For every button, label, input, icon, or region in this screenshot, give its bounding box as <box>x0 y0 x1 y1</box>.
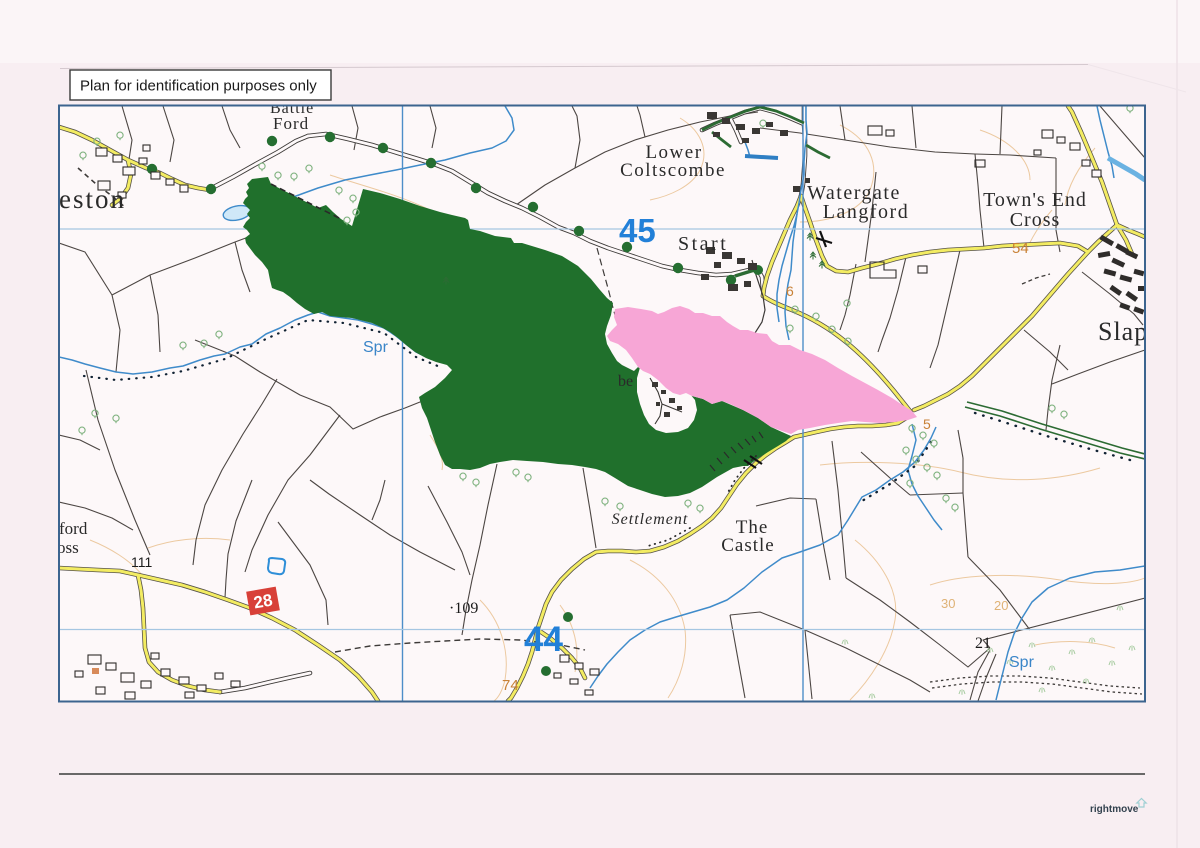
svg-text:Settlement: Settlement <box>612 511 689 528</box>
svg-text:Spr: Spr <box>1009 654 1035 671</box>
svg-text:be: be <box>618 373 633 390</box>
svg-text:30: 30 <box>941 596 955 611</box>
svg-text:·109: ·109 <box>449 600 478 617</box>
svg-text:Castle: Castle <box>721 535 775 556</box>
svg-text:Cross: Cross <box>1010 209 1061 231</box>
svg-text:Langford: Langford <box>823 201 909 223</box>
svg-text:Start: Start <box>678 233 728 255</box>
svg-text:oss: oss <box>57 538 79 557</box>
svg-text:Town's End: Town's End <box>983 189 1087 211</box>
svg-text:eston: eston <box>59 184 126 214</box>
svg-text:ford: ford <box>59 519 88 538</box>
svg-text:Ford: Ford <box>273 114 309 133</box>
svg-text:Spr: Spr <box>363 339 389 356</box>
svg-text:5: 5 <box>923 416 931 432</box>
svg-text:Slap: Slap <box>1098 317 1148 346</box>
svg-text:111: 111 <box>131 554 152 570</box>
svg-text:Plan for identification purpos: Plan for identification purposes only <box>80 78 317 95</box>
svg-text:rightmove: rightmove <box>1090 804 1139 815</box>
svg-text:Coltscombe: Coltscombe <box>620 160 726 181</box>
svg-text:74: 74 <box>502 677 519 694</box>
svg-text:21: 21 <box>975 635 991 652</box>
svg-text:28: 28 <box>252 590 274 612</box>
svg-text:44: 44 <box>524 620 563 659</box>
svg-text:6: 6 <box>786 283 794 299</box>
svg-text:45: 45 <box>619 212 656 249</box>
svg-text:54: 54 <box>1012 240 1029 257</box>
svg-text:20: 20 <box>994 598 1008 613</box>
